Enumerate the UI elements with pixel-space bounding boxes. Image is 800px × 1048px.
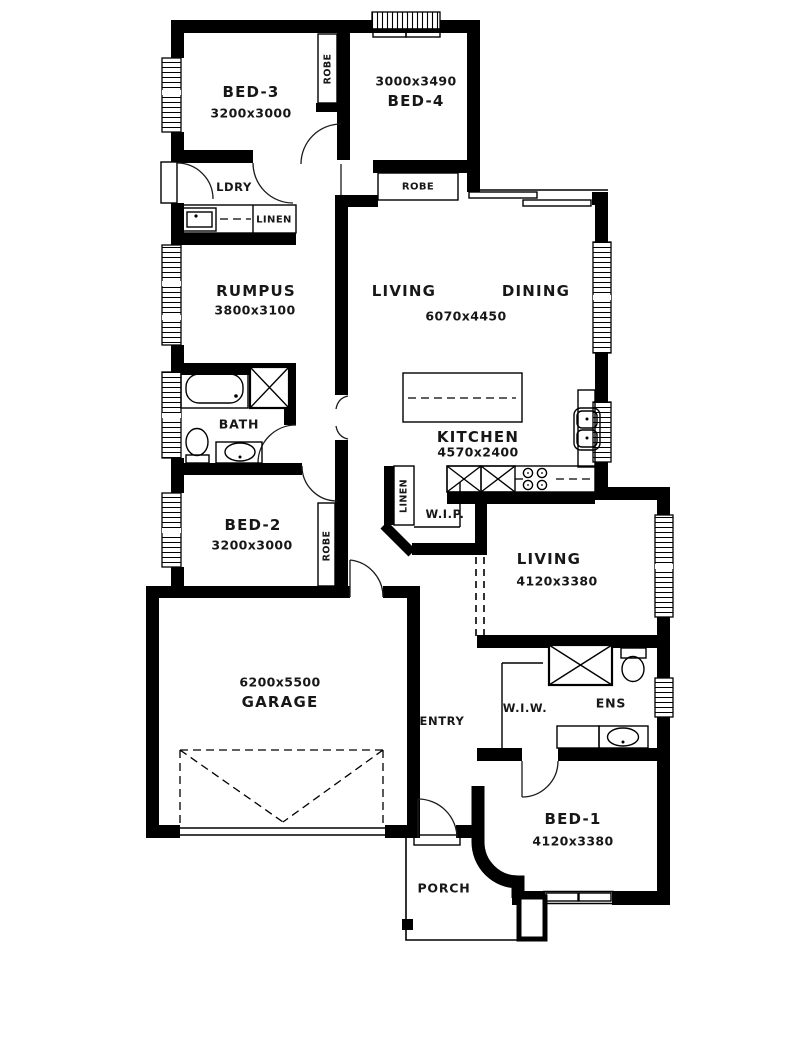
window-bed4-top — [372, 12, 440, 37]
cooktop — [523, 468, 546, 489]
room-dims-bed4: 3000x3490 — [375, 74, 456, 89]
label-linen-hall: LINEN — [256, 215, 292, 226]
room-label-bed4: BED-4 — [387, 92, 444, 110]
curved-wall — [478, 786, 518, 898]
room-label-garage: GARAGE — [242, 693, 319, 711]
bath-door — [258, 425, 296, 463]
pantry-chamfer-wall — [384, 525, 412, 553]
porch-post — [402, 919, 413, 930]
room-dims-bed2: 3200x3000 — [211, 538, 292, 553]
room-dims-garage: 6200x5500 — [239, 675, 320, 690]
window-bed2 — [162, 493, 181, 567]
room-label-entry: ENTRY — [420, 714, 465, 728]
window-bath — [162, 372, 181, 458]
garage-door — [180, 750, 385, 835]
bed4-door — [301, 124, 341, 195]
living-opening-marks — [336, 396, 348, 439]
bed2-door — [302, 466, 337, 501]
room-label-bed2: BED-2 — [224, 516, 281, 534]
room-label-rumpus: RUMPUS — [216, 282, 296, 300]
bed3-door — [253, 163, 293, 203]
label-robe-bed4: ROBE — [402, 182, 434, 193]
window-divider — [162, 90, 181, 95]
room-label-living2: LIVING — [517, 550, 581, 568]
room-dims-bed3: 3200x3000 — [210, 106, 291, 121]
room-dims-living-dining: 6070x4450 — [425, 309, 506, 324]
room-dims-kitchen: 4570x2400 — [437, 445, 518, 460]
room-label-bed3: BED-3 — [222, 83, 279, 101]
room-dims-living2: 4120x3380 — [516, 574, 597, 589]
room-dims-rumpus: 3800x3100 — [214, 303, 295, 318]
kitchen-bench — [447, 466, 595, 492]
room-label-ens: ENS — [596, 696, 626, 711]
ens-shower — [549, 645, 612, 685]
room-dims-bed1: 4120x3380 — [532, 834, 613, 849]
window-dining — [593, 242, 611, 353]
bed1-door — [522, 761, 558, 797]
bath-toilet — [186, 429, 209, 464]
kitchen-island — [403, 373, 522, 422]
label-robe-bed2: ROBE — [322, 531, 333, 562]
window-ens — [655, 678, 673, 717]
label-linen-pantry: LINEN — [399, 479, 410, 513]
sliding-door — [467, 190, 608, 206]
room-label-porch: PORCH — [417, 881, 470, 896]
room-label-wiw: W.I.W. — [503, 701, 547, 715]
floor-plan-page: BED-3 3200x3000 3000x3490 BED-4 ROBE ROB… — [0, 0, 800, 1048]
porch-pier — [519, 897, 545, 939]
ldry-external-door — [161, 162, 213, 203]
window-rumpus — [162, 245, 181, 345]
floor-plan-drawing: BED-3 3200x3000 3000x3490 BED-4 ROBE ROB… — [0, 0, 800, 1048]
window-living2 — [655, 515, 673, 617]
room-label-bed1: BED-1 — [544, 810, 601, 828]
room-label-ldry: LDRY — [216, 180, 252, 194]
window-bed1 — [543, 891, 614, 905]
bath-shower — [250, 367, 289, 408]
living2-open-boundary — [476, 557, 484, 637]
room-label-bath: BATH — [219, 417, 259, 432]
garage-internal-door — [350, 560, 383, 597]
room-label-wip: W.I.P. — [425, 507, 464, 521]
ens-toilet — [621, 648, 646, 682]
ens-vanity — [557, 726, 648, 748]
window-bed3 — [162, 58, 181, 132]
front-door — [414, 799, 460, 845]
room-label-kitchen: KITCHEN — [437, 428, 519, 446]
bath-vanity — [216, 442, 262, 463]
label-robe-bed34: ROBE — [323, 54, 334, 85]
room-label-dining: DINING — [502, 282, 570, 300]
room-label-living: LIVING — [372, 282, 436, 300]
